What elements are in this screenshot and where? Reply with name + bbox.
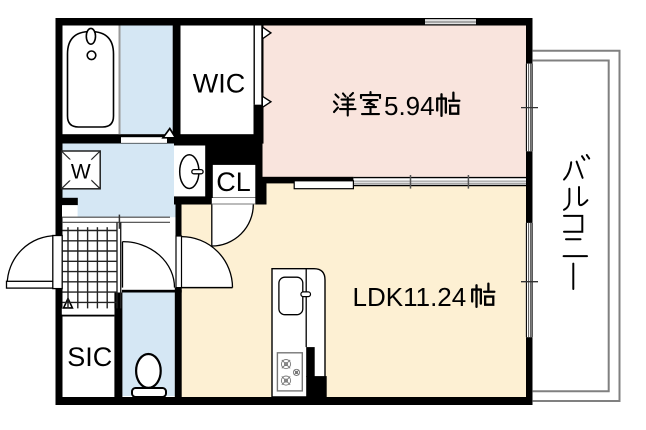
svg-text:LDK11.24: LDK11.24 [353, 282, 467, 312]
svg-text:CL: CL [216, 167, 251, 197]
svg-text:SIC: SIC [67, 342, 112, 372]
svg-text:5.94: 5.94 [384, 91, 435, 121]
svg-text:WIC: WIC [193, 69, 245, 99]
svg-text:W: W [71, 160, 91, 183]
